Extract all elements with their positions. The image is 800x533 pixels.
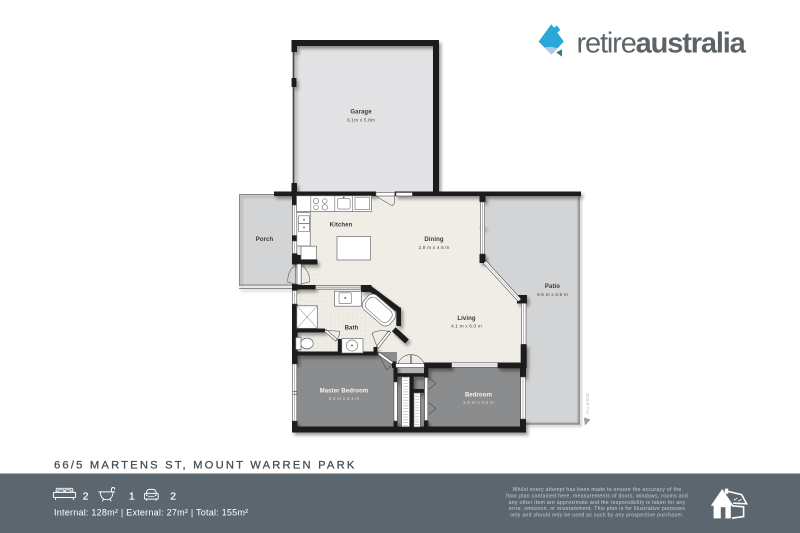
svg-text:6.1m x 5.8m: 6.1m x 5.8m [347, 117, 375, 123]
svg-text:Garage: Garage [350, 110, 372, 116]
svg-text:retireaustralia: retireaustralia [577, 28, 747, 60]
svg-text:floor plan contained here, mea: floor plan contained here, measurements … [506, 493, 688, 499]
svg-text:Living: Living [457, 316, 476, 322]
svg-text:Porch: Porch [256, 237, 274, 243]
svg-text:2: 2 [170, 492, 176, 503]
svg-text:only and should only be used a: only and should only be used as such by … [510, 513, 684, 519]
svg-text:any other item are approximate: any other item are approximate and the r… [509, 500, 686, 506]
svg-text:3.1 m x 4.1 m: 3.1 m x 4.1 m [329, 396, 360, 402]
svg-text:2.6 m x 4.0 m: 2.6 m x 4.0 m [463, 400, 494, 406]
svg-text:Kitchen: Kitchen [330, 223, 353, 229]
svg-text:Dining: Dining [424, 237, 443, 243]
svg-text:error, omission, or misstateme: error, omission, or misstatement. This p… [509, 506, 686, 512]
svg-text:66/5 MARTENS ST, MOUNT WARREN: 66/5 MARTENS ST, MOUNT WARREN PARK [54, 460, 357, 472]
svg-text:9.6 m x 3.9 m: 9.6 m x 3.9 m [537, 292, 568, 298]
svg-text:2: 2 [83, 492, 89, 503]
svg-text:2.8 m x 4.6 m: 2.8 m x 4.6 m [419, 245, 450, 251]
svg-text:Whilst every attempt has been: Whilst every attempt has been made to en… [513, 487, 682, 493]
svg-text:Bath: Bath [345, 325, 359, 331]
svg-text:Patio: Patio [545, 284, 560, 290]
svg-text:Internal: 128m² | External: 27: Internal: 128m² | External: 27m² | Total… [54, 508, 248, 518]
svg-text:Master Bedroom: Master Bedroom [320, 389, 369, 395]
svg-text:NORTH: NORTH [585, 393, 590, 414]
svg-text:Bedroom: Bedroom [465, 392, 492, 398]
svg-text:1: 1 [129, 492, 135, 503]
svg-text:4.1 m x 6.0 m: 4.1 m x 6.0 m [451, 324, 482, 330]
